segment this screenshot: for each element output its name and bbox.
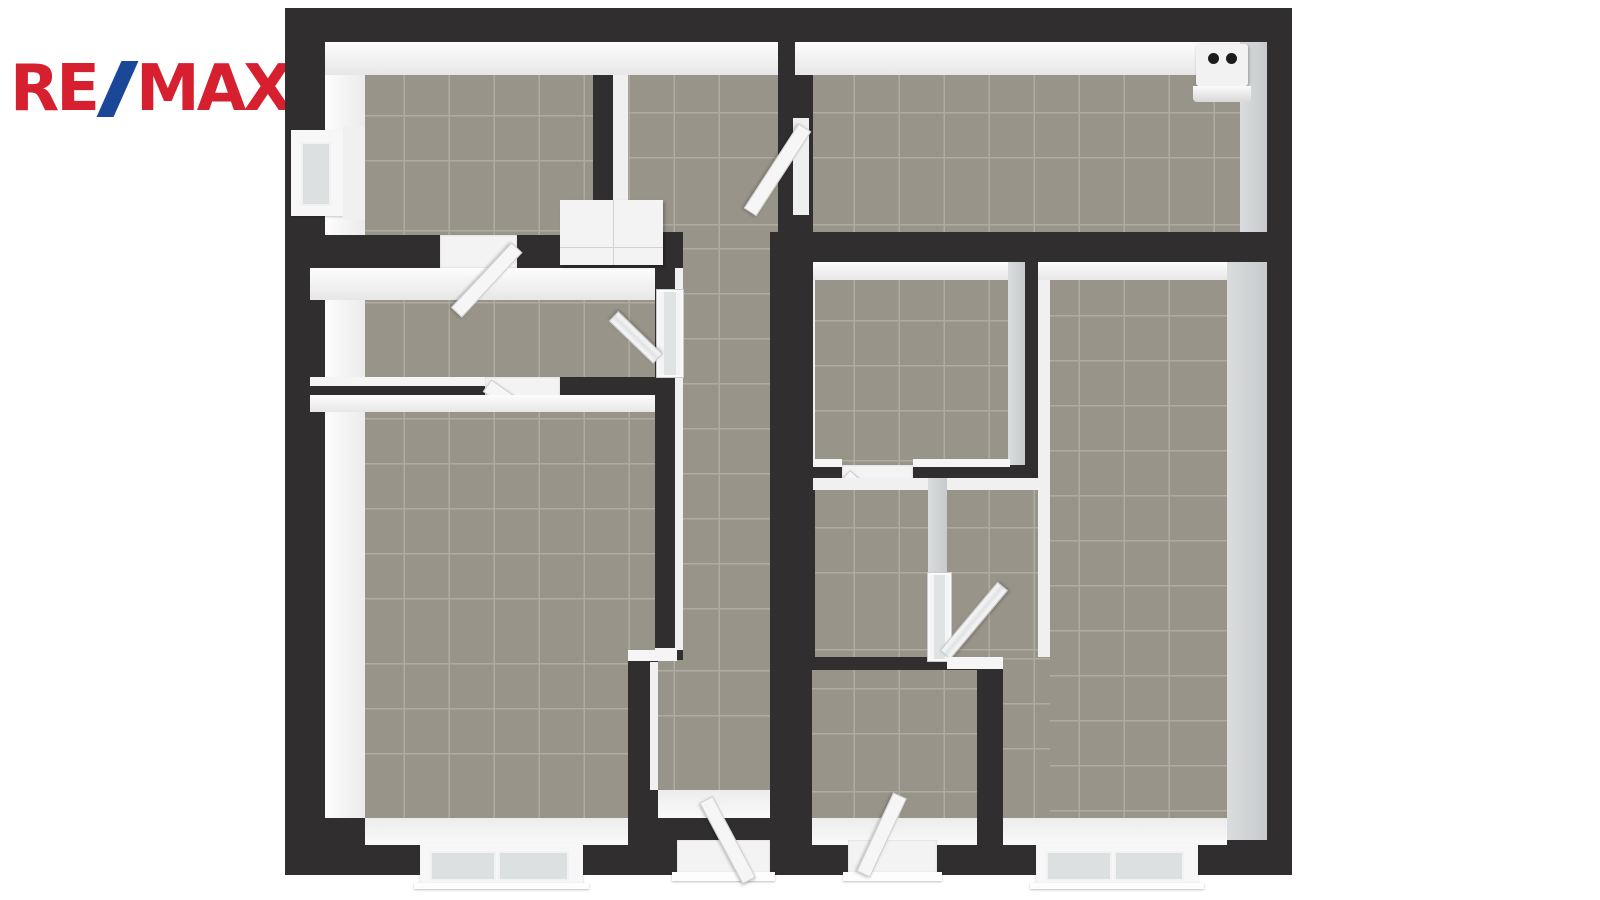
wall-face (1003, 818, 1227, 845)
window-pane (301, 142, 331, 206)
corridor-floor (683, 232, 770, 660)
wall-face (1008, 262, 1025, 465)
wall-face (325, 42, 613, 75)
wall-face (613, 42, 778, 75)
wall-cap (310, 377, 485, 386)
room-floor-top-right (813, 75, 1240, 232)
room-floor-bottom-left (365, 412, 655, 650)
window-pane (1114, 851, 1184, 881)
room-floor-right (1003, 657, 1050, 820)
water-heater (1196, 44, 1248, 86)
water-heater-knob (1226, 53, 1237, 64)
water-heater-knob (1208, 53, 1219, 64)
window-pane (498, 851, 569, 881)
water-heater-front (1193, 86, 1251, 102)
wall-face (325, 300, 365, 377)
wall-face (310, 395, 655, 412)
wall-face (650, 662, 658, 790)
glazed-door-frame (657, 290, 683, 377)
door-sill (672, 872, 775, 881)
window-sill (414, 883, 589, 889)
window-pane (430, 851, 496, 881)
window-pane (1046, 851, 1112, 881)
wall-face (1227, 262, 1267, 840)
room-floor-mid-right (815, 280, 1008, 465)
room-floor-bottom-left (365, 650, 628, 818)
wall-face (813, 478, 928, 490)
wall-face (343, 126, 365, 220)
room-floor-right (1050, 280, 1227, 820)
room-floor-wc (815, 490, 928, 657)
wall-cap (913, 459, 1010, 467)
wall-cap (947, 657, 1010, 669)
floor-plan (0, 0, 1600, 900)
floorplan-page: RE MAX (0, 0, 1600, 900)
wall-cap (813, 459, 842, 467)
built-in-cabinet (560, 200, 663, 265)
wall-face (928, 478, 947, 573)
wall-face (947, 478, 1050, 490)
wall-face (325, 412, 365, 818)
window-sill (1030, 883, 1204, 889)
corridor-floor-lower (658, 660, 770, 790)
room-floor-top-left (365, 75, 593, 235)
wall-face (813, 262, 1025, 280)
door-sill (843, 872, 942, 881)
room-floor-anteroom (365, 300, 655, 377)
wall-face (365, 818, 628, 845)
